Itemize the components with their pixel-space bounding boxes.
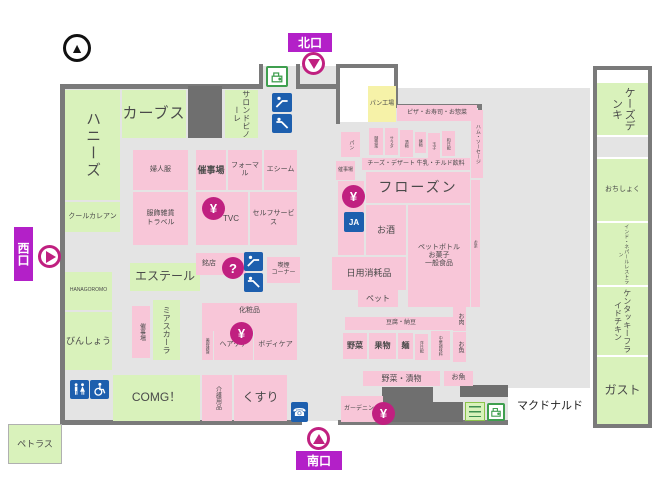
dept-yasai: 野菜 (343, 333, 367, 359)
restroom-icon (70, 380, 89, 399)
dept-frozen: フローズン (366, 172, 470, 203)
west-entrance-arrow-icon (38, 245, 61, 268)
dept-men: 麺 (398, 333, 413, 359)
dept-kaigo: 介護用品 (202, 375, 232, 421)
dept-esheem: エシーム (264, 150, 297, 190)
vacant-block (340, 86, 368, 122)
compass-needle: ▲ (70, 40, 84, 56)
yen-glyph: ¥ (350, 189, 357, 204)
dept-self-service: セルフサービス (250, 192, 297, 245)
store-binsho: びんしょう (65, 312, 112, 370)
dept-fukushoku-travel: 服飾雑貨 トラベル (133, 192, 188, 245)
dept-kudamono: 果物 (369, 333, 396, 359)
yen-icon: ¥ (372, 402, 395, 425)
store-salon-de-vinole: サロンドビノーレ (225, 90, 258, 138)
escalator-down-icon (272, 114, 292, 133)
dept-formal: フォーマル (228, 150, 262, 190)
dept-fujinfuku: 婦人服 (133, 150, 188, 190)
dept-saijijo-b: 催事場 (132, 306, 150, 358)
dept-wa-nippai: 和日配 (442, 131, 455, 156)
back-room (460, 385, 508, 397)
dept-pet: ペット (358, 290, 398, 307)
back-room (433, 402, 463, 422)
ja-glyph: JA (349, 218, 359, 227)
east-gap (597, 137, 648, 157)
dept-pizza-sushi-sozai: ピザ・お寿司・お惣菜 (397, 105, 477, 121)
ja-atm-icon: JA (344, 212, 364, 232)
south-entrance-arrow-icon (307, 427, 330, 450)
dept-chuka-chomiryo: 中華調味料 (431, 331, 450, 360)
wall (259, 64, 263, 89)
dept-tsukemono: 漬物 (400, 130, 413, 157)
store-petras: ペトラス (8, 424, 62, 464)
store-mia-scala: ミアスカーラ (153, 300, 180, 360)
store-ks-denki: ケーズデンキ (597, 83, 648, 135)
north-entrance-badge: 北口 (288, 33, 332, 52)
back-room (188, 86, 222, 138)
store-mcdonalds: マクドナルド (508, 388, 592, 425)
store-esthele: エステール (130, 263, 200, 291)
escalator-up-icon (244, 252, 263, 271)
dept-osozai: 御惣菜 (369, 128, 383, 155)
store-comg: COMG！ (113, 375, 200, 421)
dept-biyo-zakka: 美容雑貨 (202, 331, 213, 360)
store-cool-carean: クールカレアン (65, 202, 120, 232)
store-honeys: ハニーズ (65, 90, 120, 200)
information-icon: ? (222, 257, 244, 279)
yen-icon: ¥ (230, 322, 253, 345)
store-hanagoromo: HANAGOROMO (65, 272, 112, 310)
yen-icon: ¥ (202, 197, 225, 220)
store-curves: カーブス (122, 90, 186, 138)
dept-nerimono: 練物 (415, 132, 426, 153)
store-ochishoku: おちしょく (597, 159, 648, 221)
escalator-down-icon (244, 273, 263, 292)
dept-saijijo-a: 催事場 (196, 150, 226, 190)
wall (296, 64, 300, 89)
wall (60, 84, 263, 89)
floor-map: ハニーズ クールカレアン カーブス サロンドビノーレ エステール ミアスカーラ … (0, 0, 660, 500)
dept-salad: サラダ (385, 128, 398, 155)
dept-pan-kojo: パン工場 (368, 86, 396, 122)
west-entrance-badge: 西口 (14, 227, 33, 281)
north-entrance-arrow-icon (302, 52, 325, 75)
checkout-counter-icon (266, 66, 288, 87)
service-sign-icon (465, 402, 485, 421)
dept-saijijo-c: 催事場 (336, 161, 355, 180)
wall (336, 64, 398, 68)
dept-osake: お酒 (366, 205, 406, 255)
phone-glyph: ☎ (293, 406, 307, 419)
dept-tamago: 玉子 (428, 133, 440, 158)
escalator-up-icon (272, 93, 292, 112)
dept-kitsuen-corner: 喫煙 コーナー (267, 257, 300, 283)
dept-bodycare: ボディケア (254, 331, 297, 360)
dept-yasai-tsukemono: 野菜・漬物 (363, 371, 440, 386)
sign-text-lines (469, 406, 482, 416)
dept-petbottle: ペットボトル お菓子 一般食品 (408, 205, 470, 307)
yen-glyph: ¥ (238, 326, 245, 341)
wall (300, 84, 340, 89)
dept-ocha: お茶 (471, 180, 480, 307)
dept-oniku: お肉 (453, 306, 466, 331)
dept-pan: パン (341, 132, 360, 157)
yen-icon: ¥ (342, 185, 365, 208)
dept-osakana: お魚 (453, 332, 466, 362)
store-kfc: ケンタッキーフライドチキン (597, 287, 648, 355)
south-entrance-badge: 南口 (296, 451, 342, 470)
yen-glyph: ¥ (380, 406, 387, 421)
dept-cheese-milk: チーズ・デザート 牛乳・チルド飲料 (362, 158, 470, 170)
dept-osakana-b: お魚 (444, 371, 473, 386)
store-gusto: ガスト (597, 357, 648, 424)
question-glyph: ? (229, 261, 237, 276)
phone-icon: ☎ (291, 402, 308, 422)
yen-glyph: ¥ (210, 201, 217, 216)
store-indian-restaurant: インド・ネパールレストラン (597, 223, 648, 285)
dept-ham-sausage: ハム・ソーセージ (471, 110, 483, 178)
dept-tofu-natto: 豆腐・納豆 (345, 317, 457, 330)
compass-icon: ▲ (63, 34, 91, 62)
wheelchair-icon (90, 380, 109, 399)
checkout-counter-icon (487, 403, 505, 421)
dept-nichiyo-shomohin: 日用消耗品 (332, 257, 406, 290)
dept-yo-nippai: 洋日配 (415, 334, 428, 360)
dept-kusuri: くすり (234, 375, 287, 421)
